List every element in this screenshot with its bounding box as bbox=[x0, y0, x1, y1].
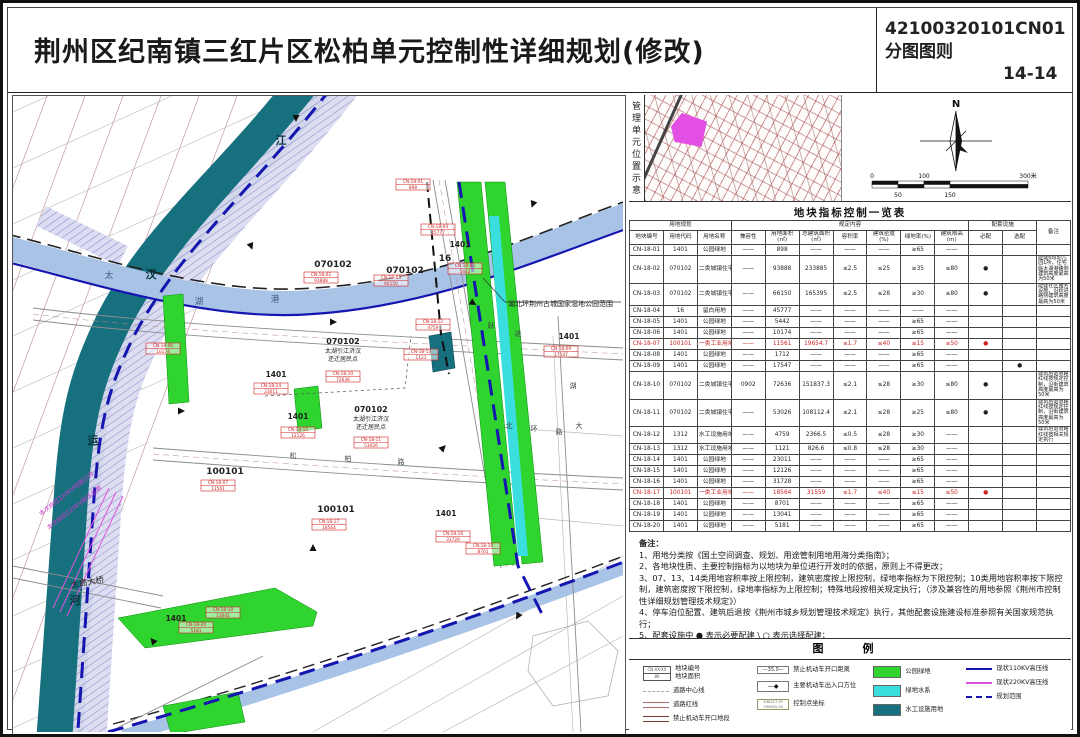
table-cell bbox=[1003, 255, 1037, 283]
color-swatch bbox=[873, 666, 901, 678]
parcel-block-line: 太湖引江济汉 bbox=[353, 415, 389, 423]
table-cell: —— bbox=[833, 477, 867, 488]
table-cell: 151837.3 bbox=[799, 371, 833, 399]
legend-title: 图 例 bbox=[629, 639, 1071, 660]
table-column-header: 容积率 bbox=[833, 231, 867, 245]
road-name-char: 湖 bbox=[570, 381, 577, 390]
table-row: CN-18-051401公园绿地——5442——————≥65—— bbox=[630, 316, 1071, 327]
table-cell: ≤80 bbox=[935, 255, 969, 283]
table-row: CN-18-011401公园绿地——898——————≥65—— bbox=[630, 244, 1071, 255]
table-group-row: 用地规划规定内容配套设施备注 bbox=[630, 221, 1071, 231]
parcel-red-box-code: CN-18-05 bbox=[455, 263, 476, 269]
table-cell: —— bbox=[867, 510, 901, 521]
table-cell: CN-18-05 bbox=[630, 316, 664, 327]
table-cell: 1121 bbox=[765, 444, 799, 455]
legend: 图 例 CN-XX-XX86地块编号地块面积道路中心线道路红线禁止机动车开口地段… bbox=[629, 638, 1071, 733]
table-row: CN-18-131312水工设施用地——1121826.6≤0.8≤28≥30—… bbox=[630, 444, 1071, 455]
parcel-red-box-code: CN-18-11 bbox=[361, 437, 382, 443]
table-cell: CN-18-17 bbox=[630, 488, 664, 499]
table-cell: CN-18-02 bbox=[630, 255, 664, 283]
table-cell: —— bbox=[867, 305, 901, 316]
canal-name-char: 运 bbox=[88, 434, 99, 447]
table-cell: —— bbox=[935, 466, 969, 477]
table-row: CN-18-11070102二类城镇住宅用地——53026108112.4≤2.… bbox=[630, 399, 1071, 427]
planning-map-svg: 江汉运河太湖港 跃进松柏路北环路湖大 070102070102161001011… bbox=[13, 96, 623, 732]
table-cell: ≤28 bbox=[867, 427, 901, 444]
parcel-red-box-code: CN-18-04 bbox=[428, 224, 449, 230]
table-cell: 72636 bbox=[765, 371, 799, 399]
table-cell: 1401 bbox=[663, 466, 697, 477]
table-cell: ≥25 bbox=[901, 399, 935, 427]
note-item: 3、07、13、14类用地容积率按上限控制，建筑密度按上限控制，绿地率指标为下限… bbox=[639, 573, 1063, 607]
parcel-red-box-area: 12126 bbox=[291, 433, 305, 439]
table-cell: ≥30 bbox=[901, 444, 935, 455]
table-cell: —— bbox=[731, 477, 765, 488]
parcel-red-box-area: 31728 bbox=[446, 537, 460, 543]
vehicle-entry-arrow-icon bbox=[310, 544, 317, 551]
table-cell: 公园绿地 bbox=[697, 349, 731, 360]
table-cell: ≥65 bbox=[901, 327, 935, 338]
table-cell bbox=[1037, 444, 1071, 455]
table-cell: —— bbox=[731, 444, 765, 455]
table-cell: —— bbox=[901, 305, 935, 316]
table-cell bbox=[1003, 488, 1037, 499]
table-cell bbox=[1037, 338, 1071, 349]
table-cell: 配建6班幼儿园1所，住宅临太湖港路侧建筑高度最高为50米 bbox=[1037, 255, 1071, 283]
table-cell: ≤15 bbox=[901, 338, 935, 349]
table-cell: 17547 bbox=[765, 360, 799, 371]
table-cell: 1401 bbox=[663, 521, 697, 532]
table-cell: —— bbox=[799, 510, 833, 521]
table-cell: —— bbox=[935, 499, 969, 510]
table-cell bbox=[969, 305, 1003, 316]
table-cell: ● bbox=[1003, 360, 1037, 371]
table-cell: CN-18-19 bbox=[630, 510, 664, 521]
parcel-code-label: 1401 bbox=[266, 370, 287, 379]
table-cell: —— bbox=[833, 360, 867, 371]
table-cell bbox=[1037, 488, 1071, 499]
note-item: 2、各地块性质、主要控制指标为以地块为单位进行开发时的依据，原则上不得更改； bbox=[639, 561, 1063, 572]
table-cell bbox=[1003, 499, 1037, 510]
table-cell bbox=[969, 521, 1003, 532]
table-cell: 建筑后退道路红线按规定控制，沿街建筑高度最高为50米 bbox=[1037, 399, 1071, 427]
table-cell: —— bbox=[867, 466, 901, 477]
table-column-header: 用地代码 bbox=[663, 231, 697, 245]
table-column-header: 选配 bbox=[1003, 231, 1037, 245]
table-cell: —— bbox=[833, 510, 867, 521]
table-cell: ≤0.5 bbox=[833, 427, 867, 444]
table-cell: —— bbox=[935, 316, 969, 327]
scale-tick: 150 bbox=[944, 192, 956, 199]
no-vehicle-opening-symbol bbox=[643, 716, 669, 722]
plan-sheet: 荆州区纪南镇三红片区松柏单元控制性详细规划(修改) 42100320101CN0… bbox=[0, 0, 1080, 737]
table-cell: CN-18-12 bbox=[630, 427, 664, 444]
table-cell: —— bbox=[799, 477, 833, 488]
table-cell: 2366.5 bbox=[799, 427, 833, 444]
table-cell: 826.6 bbox=[799, 444, 833, 455]
table-cell: 31559 bbox=[799, 488, 833, 499]
parcel-code-label: 1401 bbox=[288, 412, 309, 421]
legend-item: 道路中心线 bbox=[643, 688, 757, 695]
table-cell: 公园绿地 bbox=[697, 466, 731, 477]
compass-area: N 0100300米50150 bbox=[842, 95, 1071, 201]
table-cell: ≤28 bbox=[867, 444, 901, 455]
table-cell bbox=[1037, 466, 1071, 477]
table-cell: 8701 bbox=[765, 499, 799, 510]
table-cell: 二类城镇住宅用地 bbox=[697, 255, 731, 283]
table-cell bbox=[1003, 399, 1037, 427]
table-cell: CN-18-16 bbox=[630, 477, 664, 488]
table-cell: —— bbox=[731, 488, 765, 499]
table-cell: —— bbox=[731, 521, 765, 532]
table-cell: 10174 bbox=[765, 327, 799, 338]
table-cell bbox=[1037, 244, 1071, 255]
table-cell: CN-18-20 bbox=[630, 521, 664, 532]
table-cell bbox=[1037, 477, 1071, 488]
table-cell bbox=[1037, 316, 1071, 327]
table-cell: ≥65 bbox=[901, 521, 935, 532]
table-cell: —— bbox=[867, 316, 901, 327]
table-cell: ≥65 bbox=[901, 360, 935, 371]
legend-label: 地块编号地块面积 bbox=[675, 666, 700, 681]
table-row: CN-18-161401公园绿地——31728——————≥65—— bbox=[630, 477, 1071, 488]
table-cell: ≤1.7 bbox=[833, 488, 867, 499]
table-cell: 5181 bbox=[765, 521, 799, 532]
table-cell: 070102 bbox=[663, 399, 697, 427]
table-row: CN-18-181401公园绿地——8701——————≥65—— bbox=[630, 499, 1071, 510]
table-cell: —— bbox=[867, 499, 901, 510]
table-cell: 建筑后退道路红线按相关规定执行 bbox=[1037, 427, 1071, 444]
table-cell: —— bbox=[799, 499, 833, 510]
table-cell: ≥65 bbox=[901, 244, 935, 255]
legend-label: 主要机动车出入口方位 bbox=[793, 683, 856, 690]
table-cell bbox=[1003, 455, 1037, 466]
table-row: CN-18-10070102二类城镇住宅用地090272636151837.3≤… bbox=[630, 371, 1071, 399]
table-cell: —— bbox=[833, 466, 867, 477]
table-cell: 公园绿地 bbox=[697, 327, 731, 338]
legend-item: 禁止机动车开口地段 bbox=[643, 716, 757, 723]
table-cell: ≤1.7 bbox=[833, 338, 867, 349]
table-cell bbox=[1037, 349, 1071, 360]
parcel-red-box-code: CN-18-19 bbox=[213, 607, 234, 613]
note-item: 1、用地分类按《国土空间调查、规划、用途管制用地用海分类指南》； bbox=[639, 550, 1063, 561]
table-row: CN-18-17100101一类工业用地——1856431559≤1.7≤40≤… bbox=[630, 488, 1071, 499]
parcel-red-box-area: 10174 bbox=[156, 349, 170, 355]
table-row: CN-18-02070102二类城镇住宅用地——93888233885≤2.5≤… bbox=[630, 255, 1071, 283]
table-cell: 二类城镇住宅用地 bbox=[697, 399, 731, 427]
table-cell: ≤50 bbox=[935, 338, 969, 349]
table-cell bbox=[1037, 360, 1071, 371]
table-cell: ≤0.8 bbox=[833, 444, 867, 455]
road-name-char: 大 bbox=[576, 421, 583, 430]
parcel-red-box-code: CN-18-20 bbox=[186, 622, 207, 628]
legend-label: 绿地水系 bbox=[905, 688, 930, 695]
table-cell: 1401 bbox=[663, 499, 697, 510]
table-cell: 留白用地 bbox=[697, 305, 731, 316]
legend-item: 公园绿地 bbox=[873, 666, 966, 678]
table-cell: ≥65 bbox=[901, 510, 935, 521]
table-cell: —— bbox=[731, 283, 765, 305]
sheet-number-cell: 42100320101CN01分图图则 14-14 bbox=[876, 8, 1072, 92]
table-cell: ≤50 bbox=[935, 488, 969, 499]
table-cell: —— bbox=[867, 455, 901, 466]
minimap-road bbox=[645, 95, 684, 201]
legend-label: 道路红线 bbox=[673, 702, 698, 709]
table-cell bbox=[1003, 316, 1037, 327]
table-cell: 水工设施用地 bbox=[697, 444, 731, 455]
table-cell: ≥65 bbox=[901, 349, 935, 360]
legend-item: 现状220KV高压线 bbox=[966, 680, 1067, 687]
table-column-header: 必配 bbox=[969, 231, 1003, 245]
table-cell bbox=[1037, 510, 1071, 521]
indicator-table: 用地规划规定内容配套设施备注地块编号用地代码用地名称兼容性用地面积(㎡)总建筑面… bbox=[629, 220, 1071, 532]
table-cell bbox=[969, 477, 1003, 488]
table-cell: 1401 bbox=[663, 455, 697, 466]
table-cell: CN-18-04 bbox=[630, 305, 664, 316]
table-cell: CN-18-18 bbox=[630, 499, 664, 510]
parcel-red-box-area: 13041 bbox=[216, 613, 230, 619]
table-cell: 1401 bbox=[663, 316, 697, 327]
scale-tick: 100 bbox=[918, 173, 930, 180]
parcel-red-box-area: 5181 bbox=[191, 628, 202, 634]
table-cell: 公园绿地 bbox=[697, 455, 731, 466]
right-panel: 管理单元位置示意 N 0100300米50150 bbox=[629, 95, 1071, 733]
table-cell: 070102 bbox=[663, 255, 697, 283]
table-cell: CN-18-03 bbox=[630, 283, 664, 305]
table-cell: —— bbox=[935, 510, 969, 521]
table-cell: ≤2.1 bbox=[833, 399, 867, 427]
table-cell bbox=[969, 360, 1003, 371]
legend-item: X38227.97Y45631.05控制点坐标 bbox=[757, 699, 873, 710]
table-cell: —— bbox=[731, 244, 765, 255]
table-cell: ≥30 bbox=[901, 427, 935, 444]
parcel-red-box-area: 898 bbox=[409, 185, 417, 191]
parcel-red-box-code: CN-18-02 bbox=[311, 272, 332, 278]
legend-item: —◆主要机动车出入口方位 bbox=[757, 681, 873, 692]
table-cell: ≥65 bbox=[901, 316, 935, 327]
parcel-block-labels: 070102太湖引江济汉还迁居民点070102太湖引江济汉还迁居民点 bbox=[325, 337, 389, 431]
parcel-code-label: 1401 bbox=[559, 332, 580, 341]
table-cell: 1401 bbox=[663, 349, 697, 360]
table-cell: 1401 bbox=[663, 360, 697, 371]
legend-label: 现状220KV高压线 bbox=[996, 680, 1048, 687]
parcel-red-box-code: CN-18-09 bbox=[551, 346, 572, 352]
legend-item: 绿地水系 bbox=[873, 685, 966, 697]
table-cell: —— bbox=[833, 349, 867, 360]
table-group-header: 用地规划 bbox=[630, 221, 732, 231]
table-cell bbox=[1003, 244, 1037, 255]
notes: 备注： 1、用地分类按《国土空间调查、规划、用途管制用地用海分类指南》；2、各地… bbox=[629, 532, 1071, 653]
table-cell: 1401 bbox=[663, 510, 697, 521]
table-cell bbox=[1003, 338, 1037, 349]
table-cell: —— bbox=[935, 427, 969, 444]
table-cell: CN-18-08 bbox=[630, 349, 664, 360]
table-cell: —— bbox=[867, 327, 901, 338]
table-cell: —— bbox=[833, 521, 867, 532]
legend-item: —35.0—禁止机动车开口距离 bbox=[757, 666, 873, 674]
legend-label: 规划范围 bbox=[996, 694, 1021, 701]
road-name-char: 路 bbox=[556, 427, 563, 436]
table-cell: 二类城镇住宅用地 bbox=[697, 283, 731, 305]
table-cell bbox=[1003, 283, 1037, 305]
legend-column: CN-XX-XX86地块编号地块面积道路中心线道路红线禁止机动车开口地段 bbox=[643, 666, 757, 723]
table-cell: ≥65 bbox=[901, 499, 935, 510]
parcel-red-box-area: 45777 bbox=[431, 230, 445, 236]
table-column-header: 建筑限高(m) bbox=[935, 231, 969, 245]
table-cell: CN-18-13 bbox=[630, 444, 664, 455]
parcel-red-box-code: CN-18-06 bbox=[153, 343, 174, 349]
table-row: CN-18-151401公园绿地——12126——————≥65—— bbox=[630, 466, 1071, 477]
table-cell: 1401 bbox=[663, 244, 697, 255]
table-cell: —— bbox=[833, 305, 867, 316]
road-name-char: 北 bbox=[506, 422, 513, 430]
table-cell: ≤80 bbox=[935, 283, 969, 305]
table-cell: 31728 bbox=[765, 477, 799, 488]
table-cell: 13041 bbox=[765, 510, 799, 521]
parcel-red-box-area: 11561 bbox=[211, 486, 225, 492]
table-cell: 公园绿地 bbox=[697, 477, 731, 488]
canal-name-char: 汉 bbox=[146, 267, 158, 281]
table-cell: 898 bbox=[765, 244, 799, 255]
table-cell: 5442 bbox=[765, 316, 799, 327]
wetland-park-label: 湖北环荆州古城国家湿地公园范围 bbox=[508, 299, 613, 308]
north-label: N bbox=[952, 99, 960, 110]
legend-item: 道路红线 bbox=[643, 702, 757, 709]
table-cell: ≤40 bbox=[867, 488, 901, 499]
table-cell bbox=[969, 427, 1003, 444]
table-cell bbox=[969, 510, 1003, 521]
table-cell: 1712 bbox=[765, 349, 799, 360]
road-name-char: 跃 bbox=[488, 321, 495, 330]
table-cell: —— bbox=[935, 444, 969, 455]
table-cell bbox=[1003, 510, 1037, 521]
color-swatch bbox=[873, 685, 901, 697]
table-cell: CN-18-07 bbox=[630, 338, 664, 349]
table-cell: CN-18-01 bbox=[630, 244, 664, 255]
unit-location-minimap bbox=[645, 95, 842, 201]
table-group-header: 备注 bbox=[1037, 221, 1071, 245]
table-cell: 93888 bbox=[765, 255, 799, 283]
table-cell: 12126 bbox=[765, 466, 799, 477]
table-cell: —— bbox=[867, 521, 901, 532]
parcel-red-box-code: CN-18-15 bbox=[288, 427, 309, 433]
parcel-red-box-area: 1121 bbox=[416, 355, 427, 361]
table-cell: —— bbox=[867, 360, 901, 371]
table-cell: —— bbox=[833, 327, 867, 338]
table-column-header: 地块编号 bbox=[630, 231, 664, 245]
table-cell: ≤40 bbox=[867, 338, 901, 349]
table-cell: CN-18-09 bbox=[630, 360, 664, 371]
table-cell: ≤28 bbox=[867, 371, 901, 399]
table-cell: 23011 bbox=[765, 455, 799, 466]
parcel-red-box-area: 5442 bbox=[460, 269, 471, 275]
table-cell: 4759 bbox=[765, 427, 799, 444]
table-cell: —— bbox=[935, 305, 969, 316]
table-cell: ≤2.5 bbox=[833, 283, 867, 305]
planning-scope-symbol bbox=[966, 696, 992, 698]
table-cell: 165395 bbox=[799, 283, 833, 305]
table-cell: —— bbox=[731, 360, 765, 371]
table-cell bbox=[969, 466, 1003, 477]
parcel-block-line: 还迁居民点 bbox=[328, 355, 358, 363]
table-row: CN-18-081401公园绿地——1712——————≥65—— bbox=[630, 349, 1071, 360]
parcel-code-label: 100101 bbox=[206, 467, 244, 477]
parcel-block-line: 还迁居民点 bbox=[356, 423, 386, 431]
table-cell: —— bbox=[731, 510, 765, 521]
table-cell: CN-18-11 bbox=[630, 399, 664, 427]
table-cell: 18564 bbox=[765, 488, 799, 499]
parcel-red-box-area: 66150 bbox=[384, 281, 398, 287]
table-cell bbox=[969, 327, 1003, 338]
legend-column: 公园绿地绿地水系水工设施用地 bbox=[873, 666, 966, 723]
table-cell: 建筑后退道路红线按规定控制，沿街建筑高度最高为50米 bbox=[1037, 371, 1071, 399]
table-cell: —— bbox=[731, 349, 765, 360]
table-cell: 二类城镇住宅用地 bbox=[697, 371, 731, 399]
water-band-name-char: 港 bbox=[271, 294, 280, 305]
table-cell: ≤28 bbox=[867, 399, 901, 427]
legend-item: 现状110KV高压线 bbox=[966, 666, 1067, 673]
table-cell: —— bbox=[799, 327, 833, 338]
table-cell: —— bbox=[935, 455, 969, 466]
table-cell: —— bbox=[731, 305, 765, 316]
table-cell: —— bbox=[867, 477, 901, 488]
legend-label: 现状110KV高压线 bbox=[996, 666, 1048, 673]
table-cell: 66150 bbox=[765, 283, 799, 305]
road-redline-symbol bbox=[643, 702, 669, 708]
table-row: CN-18-091401公园绿地——17547——————≥65——● bbox=[630, 360, 1071, 371]
table-cell: ≥65 bbox=[901, 477, 935, 488]
north-arrow-icon bbox=[920, 111, 992, 171]
table-cell bbox=[1003, 371, 1037, 399]
sheet-page: 14-14 bbox=[885, 64, 1066, 84]
kv110-line-symbol bbox=[966, 668, 992, 670]
parcel-red-box-area: 53026 bbox=[364, 443, 378, 449]
parcel-code-label: 1401 bbox=[166, 614, 187, 623]
table-row: CN-18-07100101一类工业用地——1156119654.7≤1.7≤4… bbox=[630, 338, 1071, 349]
parcel-red-box-area: 72636 bbox=[336, 377, 350, 383]
table-cell bbox=[1037, 455, 1071, 466]
table-cell: ● bbox=[969, 255, 1003, 283]
table-cell: —— bbox=[935, 327, 969, 338]
table-cell: ≥35 bbox=[901, 255, 935, 283]
table-cell: 配建社区服务设施，沿跃进路侧建筑高度最高为50米 bbox=[1037, 283, 1071, 305]
table-cell: —— bbox=[867, 244, 901, 255]
notes-title: 备注： bbox=[639, 538, 1063, 549]
table-cell: 公园绿地 bbox=[697, 244, 731, 255]
note-item: 4、停车泊位配置、建筑后退按《荆州市城乡规划管理技术规定》执行，其他配套设施建设… bbox=[639, 607, 1063, 630]
parcel-box-symbol: CN-XX-XX86 bbox=[643, 666, 671, 681]
minimap-unit-highlight bbox=[671, 113, 707, 147]
table-cell: 19654.7 bbox=[799, 338, 833, 349]
table-cell bbox=[1037, 499, 1071, 510]
table-cell: —— bbox=[731, 427, 765, 444]
table-cell: 100101 bbox=[663, 338, 697, 349]
legend-grid: CN-XX-XX86地块编号地块面积道路中心线道路红线禁止机动车开口地段—35.… bbox=[629, 660, 1071, 723]
table-cell: —— bbox=[799, 466, 833, 477]
table-cell: —— bbox=[731, 455, 765, 466]
table-cell: 水工设施用地 bbox=[697, 427, 731, 444]
legend-label: 禁止机动车开口距离 bbox=[793, 667, 850, 674]
table-cell: ≤80 bbox=[935, 399, 969, 427]
parcel-red-box-area: 17547 bbox=[554, 352, 568, 358]
table-cell bbox=[1003, 427, 1037, 444]
table-cell: —— bbox=[833, 499, 867, 510]
table-cell: —— bbox=[799, 305, 833, 316]
parcel-code-label: 070102 bbox=[386, 266, 424, 276]
table-cell: 公园绿地 bbox=[697, 360, 731, 371]
table-cell: 1401 bbox=[663, 327, 697, 338]
parcel-red-box-code: CN-18-01 bbox=[403, 179, 424, 185]
